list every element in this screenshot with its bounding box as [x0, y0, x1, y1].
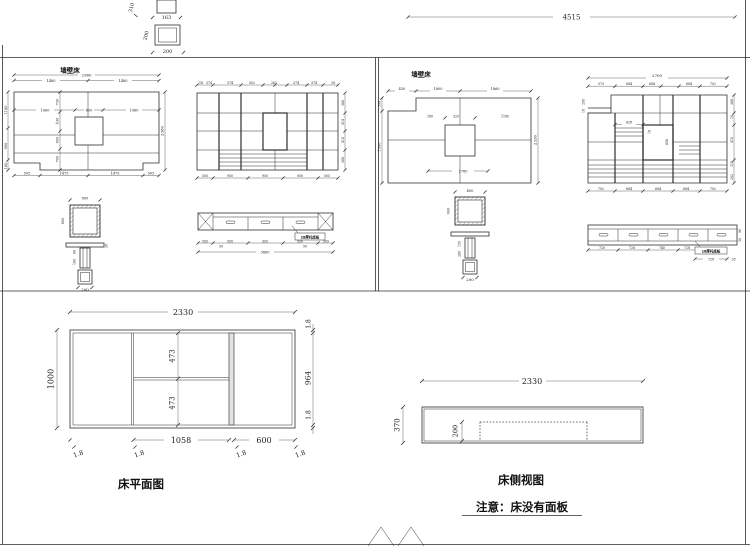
dim-label: 600	[256, 436, 271, 445]
dim-label: 573	[598, 82, 604, 86]
ru-pillar-base-inner	[466, 263, 475, 272]
dim-label: 160	[73, 259, 77, 265]
dim-label: 2380	[160, 125, 165, 136]
left-unit: 墙壁床 2960 1480 1480 1060 800 1060 730 430…	[4, 66, 347, 293]
dim-label: 318	[730, 161, 734, 167]
ru-pillar-slab	[451, 232, 489, 236]
drawer-handle	[261, 221, 270, 224]
dim-label: 600	[447, 208, 451, 215]
dim-label: 1.8	[133, 449, 145, 460]
dim-label: 728	[708, 257, 714, 261]
bed-side-ticks	[401, 379, 645, 445]
dim-label: 1060	[41, 109, 50, 113]
dim-label: 90	[738, 229, 742, 233]
lu-plan-outline	[14, 92, 159, 170]
dim-label: 964	[304, 371, 313, 386]
dim-label: 1.8	[235, 449, 247, 460]
bed-plan-title: 床平面图	[118, 477, 164, 491]
dim-label: 505	[24, 171, 31, 175]
dim-label: 200	[466, 277, 474, 282]
drawer-handle	[599, 234, 608, 237]
ru-elev-ticks	[586, 76, 735, 192]
dim-label: 150	[458, 241, 462, 247]
dim-label: 50	[303, 245, 307, 249]
dim-label: 728	[629, 246, 635, 250]
ru-plan-center-column	[445, 125, 475, 156]
dim-label: 684	[626, 187, 632, 191]
dim-label: 208	[582, 99, 586, 105]
dim-label: 702	[710, 82, 716, 86]
dim-label: 374	[206, 81, 212, 85]
lu-cabinet-lines	[198, 213, 333, 230]
dim-label: 320	[453, 115, 459, 119]
bottom-partial-drawing	[368, 527, 424, 546]
sheet-borders	[0, 0, 750, 545]
dim-label-side-width: 2330	[522, 377, 542, 386]
dim-label: 374	[293, 81, 299, 85]
bed-side-hidden-box	[480, 422, 587, 441]
dim-label: 730	[56, 99, 60, 106]
bed-plan-divider-1	[132, 333, 134, 425]
dim-label: 202	[730, 174, 734, 180]
dim-label: 180	[4, 163, 8, 170]
cad-sheet: 163 310 200 200 4515 墙壁床 2960 1480 1480 …	[0, 0, 750, 546]
dim-label: 1.8	[72, 449, 84, 460]
dim-label: 950	[297, 174, 303, 178]
dim-label: 28	[731, 257, 735, 261]
dim-label: 505	[202, 174, 208, 178]
dim-label: 200	[163, 49, 173, 55]
dim-label: 1.8	[294, 449, 306, 460]
dim-label: 1480	[119, 79, 128, 83]
bed-side-dim-lines	[403, 381, 643, 443]
dim-label: 430	[56, 118, 60, 125]
left-unit-title: 墙壁床	[60, 66, 80, 75]
dim-label: 2700	[652, 73, 663, 78]
ru-cabinet-leader	[695, 241, 700, 247]
ru-cabinet-note: 18厚托底板	[702, 248, 721, 253]
dim-label: 473	[169, 349, 177, 362]
dim-label: 414	[341, 137, 345, 143]
bed-plan-mid-rail	[134, 378, 230, 381]
bed-plan-divider-2	[229, 333, 234, 425]
dim-label: 740	[659, 246, 665, 250]
ru-cabinet-outline	[588, 225, 737, 245]
dim-label: 684	[649, 82, 655, 86]
dim-label: 414	[341, 119, 345, 125]
dim-label: 1475	[60, 171, 69, 175]
dim-label: 628	[626, 121, 632, 125]
dim-label-bed-height: 1000	[47, 369, 56, 389]
bed-plan-view: 2330 1000 473 473 1.8 964 1.8 1058 600 1…	[47, 308, 316, 491]
lu-pillar-base-outer	[78, 270, 92, 284]
dim-label-bed-width: 2330	[173, 308, 193, 317]
dim-label-side-height: 370	[394, 418, 402, 431]
dim-label: 200	[142, 30, 150, 41]
dim-label: 800	[86, 109, 93, 113]
dim-label: 18	[199, 81, 203, 85]
dim-label: 200	[81, 287, 89, 292]
ru-pillar-base-outer	[463, 260, 477, 274]
dim-label: 600	[56, 137, 60, 144]
dim-label: 60	[73, 250, 77, 254]
lu-pillar-column-lines	[83, 248, 87, 268]
dim-label: 502	[249, 81, 255, 85]
column-section-rect	[157, 0, 176, 13]
dim-label: 1.8	[306, 319, 313, 329]
dim-label: 800	[82, 197, 89, 201]
right-unit-title: 墙壁床	[411, 70, 431, 79]
dim-label: 700	[56, 156, 60, 163]
lu-pillar-base-inner	[81, 273, 90, 282]
dim-label: 374	[227, 81, 233, 85]
dim-label: 1180	[501, 115, 509, 119]
bed-side-title: 床侧视图	[498, 473, 544, 487]
ru-pillar-column-lines	[468, 238, 472, 258]
top-ticks	[134, 14, 737, 54]
drawer-handle	[296, 221, 305, 224]
dim-label: 368	[341, 157, 345, 163]
dim-label: 163	[162, 15, 172, 21]
lu-plan-dim-lines	[8, 75, 165, 176]
dim-label: 180	[427, 115, 433, 119]
dim-label: 410	[730, 137, 734, 143]
dim-label: 505	[148, 171, 155, 175]
dim-label: 30	[738, 238, 742, 242]
dim-label: 950	[4, 143, 8, 150]
drawer-handle	[717, 234, 726, 237]
dim-label: 1475	[111, 171, 120, 175]
dim-label: 950	[262, 174, 268, 178]
dim-label: 18	[648, 130, 652, 134]
lu-elev-ticks	[195, 83, 346, 179]
dim-label: 2330	[533, 134, 538, 145]
lu-pillar-slab	[66, 243, 104, 247]
dim-label: 473	[169, 396, 177, 409]
ru-pillar-column	[465, 238, 475, 258]
dim-label: 430	[399, 87, 406, 91]
lu-elev-outline	[197, 93, 338, 170]
bed-side-view: 2330 370 200 床侧视图 注意：床没有面板	[394, 377, 646, 516]
lu-plan-ticks	[6, 73, 166, 177]
dim-label: 684	[686, 82, 692, 86]
top-strip: 163 310 200 200 4515	[128, 0, 737, 55]
lu-elev-niche	[263, 113, 287, 150]
dim-label: 18	[331, 81, 335, 85]
lu-pillar-column	[80, 248, 90, 268]
bed-plan-dim-lines	[57, 312, 313, 440]
partial-zigzag-lines	[368, 527, 424, 546]
dim-label: 950	[297, 239, 303, 243]
bed-plan-outline	[70, 330, 295, 428]
bed-plan-inner	[73, 333, 292, 425]
dim-label: 505	[323, 239, 329, 243]
dim-label: 684	[655, 187, 661, 191]
dim-label: 310	[128, 2, 136, 13]
drawer-handle	[689, 234, 698, 237]
lu-elev-horizontals	[197, 93, 338, 170]
dim-label: 684	[626, 82, 632, 86]
dim-label: 950	[227, 174, 233, 178]
dim-label-4515: 4515	[563, 14, 581, 22]
dim-label: 950	[227, 239, 233, 243]
lu-cabinet-note: 18厚托底板	[301, 234, 320, 239]
dim-label: 720	[599, 246, 605, 250]
dim-label: 702	[710, 187, 716, 191]
border-lines	[0, 0, 750, 545]
dim-label: 608	[665, 139, 669, 145]
dim-label: 50	[219, 245, 223, 249]
dim-label: 505	[202, 239, 208, 243]
dim-label: 1860	[491, 87, 500, 91]
right-unit: 墙壁床 430 1800 1860 504 1500 2330 180 320 …	[378, 70, 743, 283]
dim-label: 728	[684, 246, 690, 250]
dim-label: 18	[582, 109, 586, 113]
dim-label: 262	[271, 81, 277, 85]
drawer-handle	[629, 234, 638, 237]
drawer-handle	[659, 234, 668, 237]
lu-plan-inner-lines	[14, 92, 159, 170]
lu-cabinet-leader	[292, 226, 298, 233]
lu-plan-center-column	[75, 117, 103, 145]
ru-elev-outline	[588, 95, 727, 183]
dim-label: 2960	[81, 73, 92, 78]
dim-label: 1058	[171, 436, 191, 445]
dim-label: 800	[61, 218, 65, 225]
dim-label: 368	[730, 99, 734, 105]
dim-label: 18	[730, 115, 734, 119]
ru-elev-verticals	[615, 95, 700, 183]
dim-label: 1480	[47, 79, 56, 83]
dim-label: 684	[683, 187, 689, 191]
dim-label: 200	[452, 425, 460, 437]
dim-label: 1060	[130, 109, 139, 113]
lu-pillar-inner	[73, 208, 97, 234]
bed-note: 注意：床没有面板	[476, 500, 568, 514]
column-plan-inner	[159, 28, 177, 42]
lu-elev-verticals	[219, 93, 323, 170]
ru-cabinet-lines	[588, 229, 737, 241]
dim-label: 950	[262, 239, 268, 243]
drawer-handle	[226, 221, 235, 224]
dim-label: 1.8	[306, 410, 313, 420]
dim-label: 1800	[434, 87, 443, 91]
dim-label: 1180	[4, 106, 8, 115]
lu-cabinet-outline	[198, 213, 333, 230]
dim-label: 1500	[378, 143, 382, 152]
dim-label: 400	[467, 189, 474, 193]
dim-label: 3860	[261, 250, 270, 254]
ru-pillar-inner	[458, 200, 482, 222]
dim-label: 30	[105, 244, 109, 248]
dim-label: 505	[324, 174, 330, 178]
ru-elev-horizontals	[588, 95, 727, 177]
cad-drawing: 163 310 200 200 4515 墙壁床 2960 1480 1480 …	[0, 0, 750, 546]
dim-label: 504	[378, 101, 382, 107]
dim-label: 374	[311, 81, 317, 85]
dim-label: 1780	[459, 169, 468, 173]
dim-label: 260	[458, 251, 462, 257]
dim-label: 368	[341, 100, 345, 106]
dim-label: 702	[598, 187, 604, 191]
